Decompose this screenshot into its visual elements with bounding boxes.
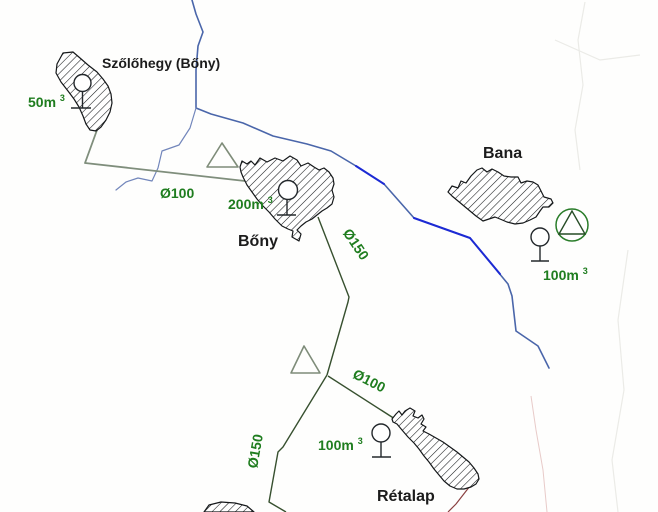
reservoir-icon-retalap — [372, 424, 391, 457]
capacity-exponent: 3 — [583, 266, 588, 276]
capacity-label-retalap: 100m 3 — [318, 436, 363, 453]
capacity-label-bony: 200m 3 — [228, 195, 273, 212]
pipe-label-d100-main: Ø100 — [160, 185, 194, 201]
reservoir-icon-bana — [531, 228, 549, 261]
network-map-svg: Szőlőhegy (Bőny) Bőny Bana Rétalap 50m 3… — [0, 0, 658, 512]
pipe-label-d150-lower: Ø150 — [244, 433, 266, 470]
pipe-label-d150-upper: Ø150 — [340, 226, 373, 264]
contour-line-pink — [531, 396, 547, 512]
settlement-retalap — [392, 408, 479, 489]
booster-triangle-icon — [207, 143, 238, 167]
capacity-value: 200m — [228, 196, 264, 212]
settlement-bana — [448, 168, 553, 224]
settlement-areas — [56, 52, 553, 512]
river-branch — [116, 108, 196, 190]
capacity-exponent: 3 — [60, 93, 65, 103]
background-contours — [531, 2, 640, 512]
contour-line — [612, 250, 628, 512]
contour-line — [555, 40, 640, 60]
booster-triangle-icon — [291, 346, 320, 373]
capacity-exponent: 3 — [358, 436, 363, 446]
capacity-label-szolohegy: 50m 3 — [28, 93, 65, 110]
capacity-value: 100m — [318, 437, 354, 453]
place-label-bony: Bőny — [238, 233, 278, 250]
contour-line — [575, 2, 585, 170]
place-label-bana: Bana — [483, 145, 522, 162]
settlement-south-cutoff — [204, 502, 254, 512]
network-map: Szőlőhegy (Bőny) Bőny Bana Rétalap 50m 3… — [0, 0, 658, 512]
well-pump-icon — [556, 209, 588, 241]
river-bright-segment — [414, 218, 500, 274]
pipes — [85, 130, 395, 512]
pipe-label-d100-retalap: Ø100 — [350, 366, 388, 396]
river-bright-segment — [356, 166, 384, 184]
capacity-exponent: 3 — [268, 195, 273, 205]
capacity-label-bana: 100m 3 — [543, 266, 588, 283]
place-label-retalap: Rétalap — [377, 488, 435, 505]
place-label-szolohegy: Szőlőhegy (Bőny) — [102, 55, 220, 71]
capacity-value: 50m — [28, 94, 56, 110]
pipe-szolohegy-to-bony — [85, 130, 245, 181]
capacity-value: 100m — [543, 267, 579, 283]
boundary-red-line — [448, 486, 470, 512]
